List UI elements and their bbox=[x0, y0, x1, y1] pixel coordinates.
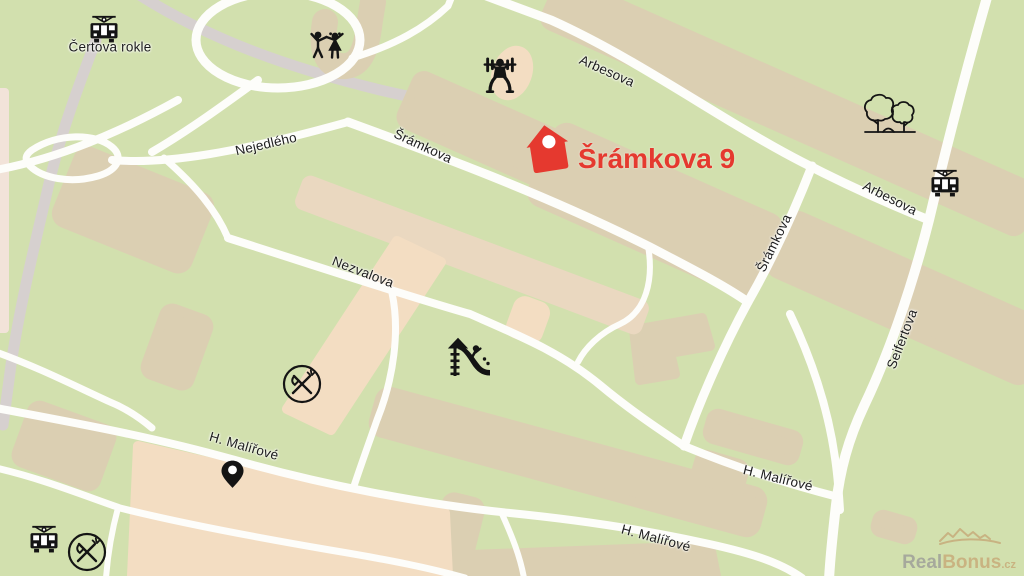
location-pin-icon bbox=[221, 460, 244, 489]
restaurant-icon bbox=[281, 363, 323, 405]
tram-icon bbox=[26, 523, 62, 554]
restaurant-icon bbox=[66, 531, 108, 573]
watermark-text: RealBonus.cz bbox=[886, 553, 1016, 572]
weightlifter-icon bbox=[481, 55, 519, 96]
map: Čertova rokle Arbesova Arbesova Nejedléh… bbox=[0, 0, 1024, 576]
children-playing-icon bbox=[308, 29, 350, 63]
tram-icon bbox=[927, 167, 963, 198]
watermark: RealBonus.cz bbox=[886, 526, 1016, 572]
watermark-part1: Real bbox=[902, 552, 942, 573]
poi-label-certova-rokle: Čertova rokle bbox=[69, 40, 152, 55]
realbonus-roofs-logo bbox=[938, 526, 1002, 548]
playground-slide-icon bbox=[448, 335, 492, 379]
watermark-tld: .cz bbox=[1001, 559, 1016, 571]
edge-strip bbox=[0, 88, 9, 333]
house-marker-icon bbox=[524, 122, 572, 176]
trees-icon bbox=[862, 92, 918, 138]
marker-title: Šrámkova 9 bbox=[578, 143, 735, 175]
watermark-part2: Bonus bbox=[942, 552, 1001, 573]
